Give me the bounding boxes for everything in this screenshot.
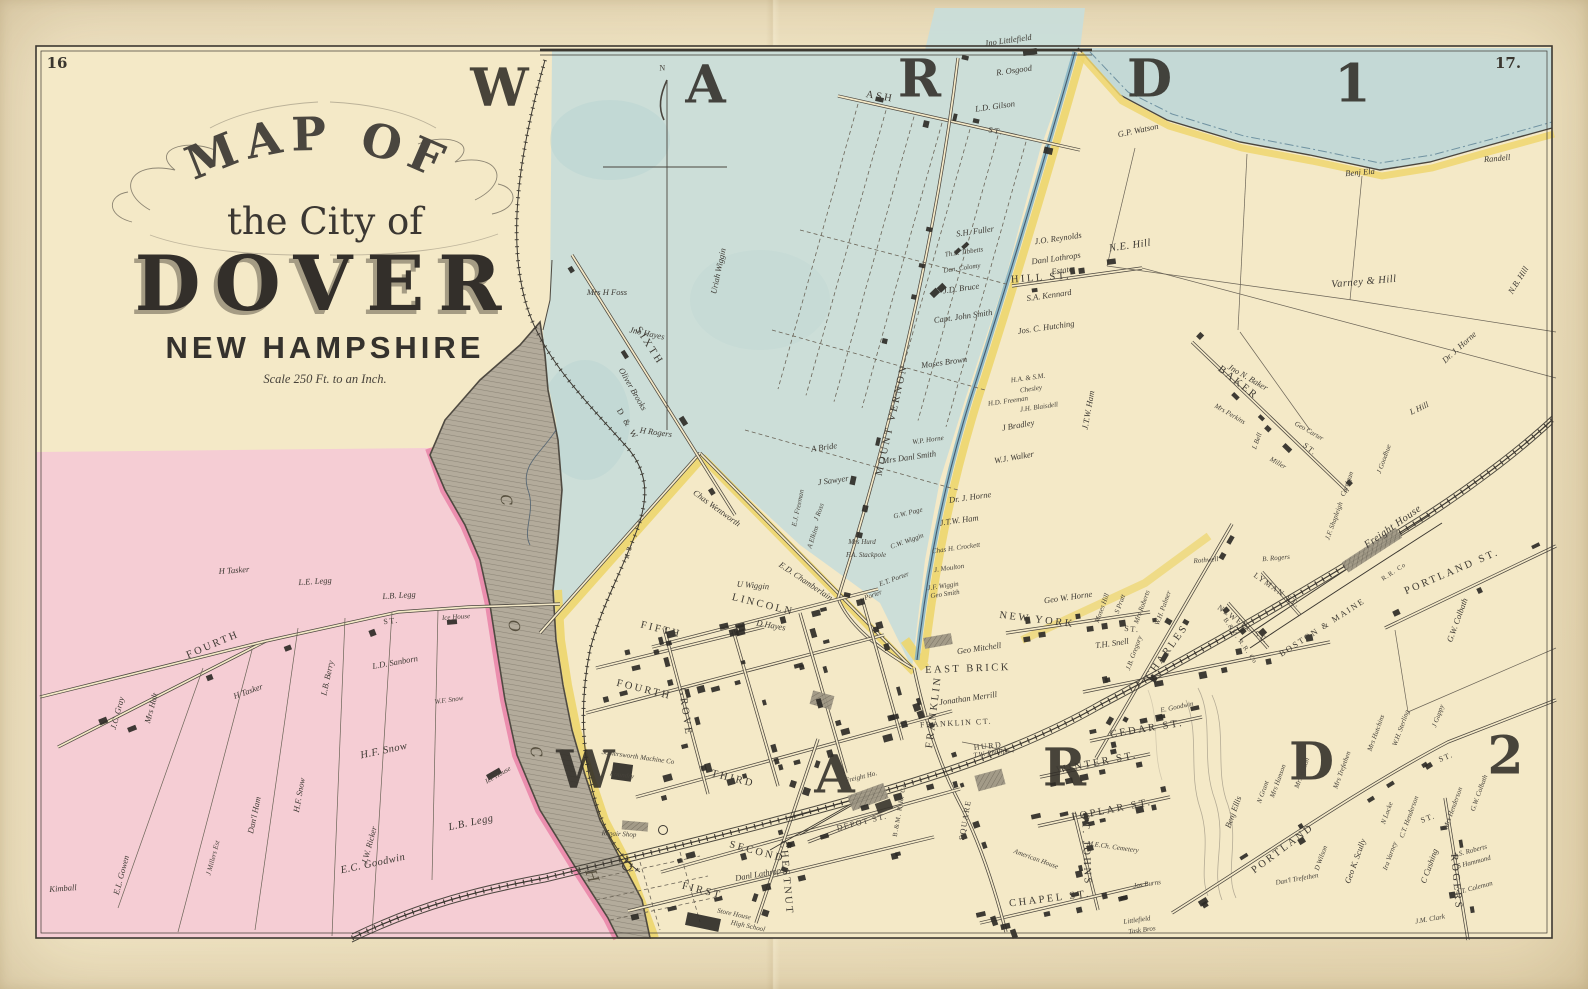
street-label: LYMAN ST.	[1252, 571, 1302, 610]
map-label: C	[496, 493, 516, 507]
map-label: Benj Ellis	[1223, 795, 1244, 830]
map-label: Mrs Roberts	[1132, 589, 1151, 624]
map-label: J Sawyer	[817, 473, 849, 487]
map-label: G.W. Page	[893, 506, 924, 521]
street-label: EAST BRICK	[925, 662, 1011, 676]
map-label: Jno Littlefield	[984, 32, 1032, 49]
map-label: J Goodhue	[1375, 443, 1393, 474]
map-label: Freight House	[1362, 503, 1423, 550]
map-label: Jos. C. Hutching	[1017, 318, 1075, 336]
map-label: J.T.W. Ham	[1080, 390, 1097, 430]
map-label: Dr. J. Horne	[1440, 329, 1478, 365]
map-label: S.A. Kennard	[1026, 287, 1072, 303]
map-label: Mrs H Foss	[587, 287, 627, 297]
map-label: L.D. Gilson	[975, 98, 1016, 113]
map-label: Mrs Holt	[142, 692, 160, 724]
map-label: E. Goodwin	[1160, 700, 1194, 715]
map-label: Miller	[1268, 455, 1287, 471]
map-label: Mrs Henderson	[1442, 786, 1464, 830]
map-label: E.D. Chamberlain	[777, 559, 834, 602]
street-label: FOURTH	[615, 678, 672, 702]
street-label: CHESTNUT	[777, 840, 794, 916]
ward-letter: D	[1127, 49, 1173, 110]
map-label: B. Rogers	[1262, 553, 1290, 563]
map-label: E.C. Goodwin	[340, 852, 407, 876]
street-label: ST. JOHNS	[1079, 814, 1093, 886]
map-label: J.M. Clark	[1414, 912, 1445, 925]
map-label: Chas H. Crockett	[931, 541, 980, 556]
map-label: American House	[1013, 847, 1060, 871]
street-label: ST.	[1419, 811, 1436, 825]
map-label: C Cushing	[1418, 847, 1440, 884]
street-label: CHAPEL ST.	[1009, 889, 1092, 910]
map-label: Mrs Hanson	[1268, 763, 1287, 798]
street-label: FIFTH	[639, 620, 682, 641]
street-label: SQUARE	[957, 799, 973, 841]
map-label: Geo Carter	[1293, 420, 1325, 443]
street-label: ASH	[865, 89, 895, 105]
map-label: H.F. Snow	[291, 777, 307, 813]
map-label: N Locke	[1379, 801, 1394, 825]
street-label: ST.	[1437, 750, 1455, 764]
ward-letter: A	[685, 55, 726, 116]
map-label: A Bride	[810, 440, 837, 454]
street-label: N	[659, 64, 666, 73]
street-label: ST.	[383, 616, 399, 627]
map-label: J.T.W. Ham	[939, 512, 979, 527]
map-label: J Guppy	[1430, 704, 1446, 729]
map-label: Ice House	[442, 612, 471, 622]
ward-letter: R	[898, 49, 942, 110]
map-label: Geo K. Scully	[1342, 837, 1367, 885]
map-label: J. Moulton	[933, 562, 964, 574]
map-label: G.P. Watson	[1117, 121, 1160, 139]
street-label: PORTLAND	[1250, 822, 1317, 876]
map-label: N.E. Hill	[1108, 238, 1151, 255]
map-label: Th.L. Tibbetts	[944, 245, 983, 258]
atlas-page: MAP OF the City of DOVER NEW HAMPSHIRE S…	[0, 0, 1588, 989]
street-label: ST.	[988, 125, 1005, 137]
map-label: Carrigan	[1339, 470, 1355, 497]
map-label: Ice House	[484, 764, 512, 785]
map-label: L.D. Sanborn	[371, 653, 418, 671]
map-label: C.T. Henderson	[1398, 795, 1421, 839]
map-label: Geo W. Horne	[1043, 589, 1092, 606]
map-label: W.F. Snow	[434, 694, 464, 706]
ward-letter: 2	[1487, 726, 1524, 787]
map-label: Dan'l Trefethen	[1275, 871, 1319, 886]
ward-letter: W	[470, 58, 529, 119]
map-label: R. Osgood	[996, 63, 1033, 78]
map-label: G.W. Colbath	[1469, 774, 1490, 813]
map-label: M.E.Ch. Cemetery	[1087, 839, 1140, 854]
street-label: CHARLES	[1143, 622, 1190, 681]
map-label: Moses Brown	[920, 354, 967, 370]
map-label: B.&M. R.R. Co	[892, 783, 908, 838]
map-label: Jonathan Merrill	[938, 689, 997, 707]
street-label: ST.	[1124, 624, 1140, 634]
map-label: Jos Burns	[1133, 878, 1162, 890]
map-label: Porter	[863, 588, 883, 602]
map-label: N.B. Hill	[1506, 264, 1531, 295]
map-label: Ira Varney	[1381, 841, 1399, 872]
map-label: Rothwell	[1193, 555, 1218, 565]
map-label: J.C. Gray	[108, 696, 126, 731]
street-label: THIRD	[710, 768, 756, 789]
map-label: S Pratt	[1113, 593, 1127, 614]
map-label: R.R. Co	[1380, 561, 1407, 582]
map-label: Dan. Colomy	[943, 261, 981, 274]
map-label: L Hill	[1408, 399, 1430, 416]
map-label: J Ross	[812, 502, 826, 522]
map-label: Geo Mitchell	[956, 640, 1002, 656]
page-number: 17.	[1495, 54, 1521, 72]
map-label: C	[526, 745, 546, 760]
map-label: J.F. Shapleigh	[1323, 501, 1344, 541]
map-label: Chesley	[1019, 383, 1042, 394]
map-label: D & W	[615, 406, 641, 441]
map-label: U Wiggin	[736, 579, 769, 592]
map-label: Mrs Hurd	[848, 538, 876, 546]
map-label: J.O. Reynolds	[1034, 230, 1082, 247]
map-label: G.W. Colbath	[1444, 597, 1469, 644]
street-label: DEPOT ST.	[836, 811, 889, 832]
map-label: Chas Wentworth	[691, 487, 742, 528]
map-label: J Millers Est	[205, 840, 222, 877]
page-number: 16	[47, 54, 68, 72]
street-label: GROVE	[676, 687, 694, 737]
map-label: Danl Lothrops	[1031, 250, 1081, 267]
map-label: H	[581, 867, 602, 885]
map-label: Repair Shop	[601, 829, 636, 839]
map-label: J.D. Bruce	[942, 281, 980, 296]
street-label: FRANKLIN	[924, 675, 944, 749]
map-label: L.B. Berry	[318, 660, 335, 697]
map-label: Dan'l Ham	[245, 796, 263, 835]
map-label: Uriah Wiggin	[708, 247, 727, 295]
map-label: Littlefield	[1123, 914, 1151, 926]
map-labels-layer: WARD1WARD21617.COCHNASHST.SIXTHMOUNT VER…	[0, 0, 1588, 989]
map-label: Oliver Brooks	[617, 366, 649, 412]
map-label: W.H. Palmer	[1153, 590, 1173, 627]
map-label: L.B. Legg	[448, 813, 495, 833]
map-label: S.H. Fuller	[955, 223, 994, 238]
map-label: L.B. Legg	[382, 589, 416, 601]
map-label: E.T. Porter	[878, 570, 910, 588]
map-label: Varney & Hill	[1331, 274, 1397, 291]
map-label: H.A. & S.M.	[1010, 372, 1045, 385]
map-label: T.H. Snell	[1095, 636, 1130, 651]
map-label: C.W. Wiggin	[889, 531, 925, 550]
map-label: Danl Lathrop	[734, 865, 781, 883]
street-label: CEDAR ST.	[1109, 718, 1185, 741]
street-label: FOURTH	[185, 629, 241, 661]
map-label: Randell	[1483, 152, 1510, 164]
map-label: J Bradley	[1001, 417, 1035, 433]
ward-letter: 1	[1334, 54, 1371, 115]
map-label: O	[504, 619, 523, 633]
map-label: H.F. Snow	[359, 741, 408, 762]
map-label: H Rogers	[639, 425, 672, 439]
street-label: FIRST	[681, 881, 724, 902]
map-label: E.J. Freeman	[790, 489, 806, 527]
map-label: D Wilson	[1313, 844, 1329, 871]
map-label: H Tasker	[232, 681, 264, 701]
map-label: Kimball	[49, 882, 77, 894]
map-label: R.R.	[624, 542, 634, 559]
map-label: Benj Ela	[1345, 166, 1375, 179]
street-label: ST.	[1301, 441, 1319, 457]
map-label: W.J. Walker	[993, 449, 1034, 466]
map-label: L.E. Legg	[298, 575, 332, 587]
street-label: LINCOLN	[731, 592, 795, 618]
map-label: L Bell	[1250, 432, 1263, 451]
map-label: A Elkins	[806, 525, 821, 550]
map-label: Task Bros	[1128, 924, 1156, 936]
map-label: Moses Hill	[1093, 592, 1111, 623]
map-label: Capt. John Smith	[933, 307, 993, 325]
map-label: E.L. Gowen	[111, 854, 131, 896]
map-label: Dr. J. Horne	[948, 489, 991, 505]
map-label: W.P. Horne	[912, 434, 945, 446]
map-label: H Tasker	[218, 564, 249, 576]
map-label: D Hayes	[756, 618, 787, 633]
street-label: PORTLAND ST.	[1403, 547, 1501, 597]
map-label: W.H. Sterling	[1391, 709, 1411, 747]
map-label: Mrs Perkins	[1213, 402, 1247, 426]
street-label: NEW YORK	[999, 610, 1075, 630]
map-label: Mrs Hutchins	[1366, 714, 1387, 753]
map-label: F.A. Stackpole	[846, 551, 886, 559]
